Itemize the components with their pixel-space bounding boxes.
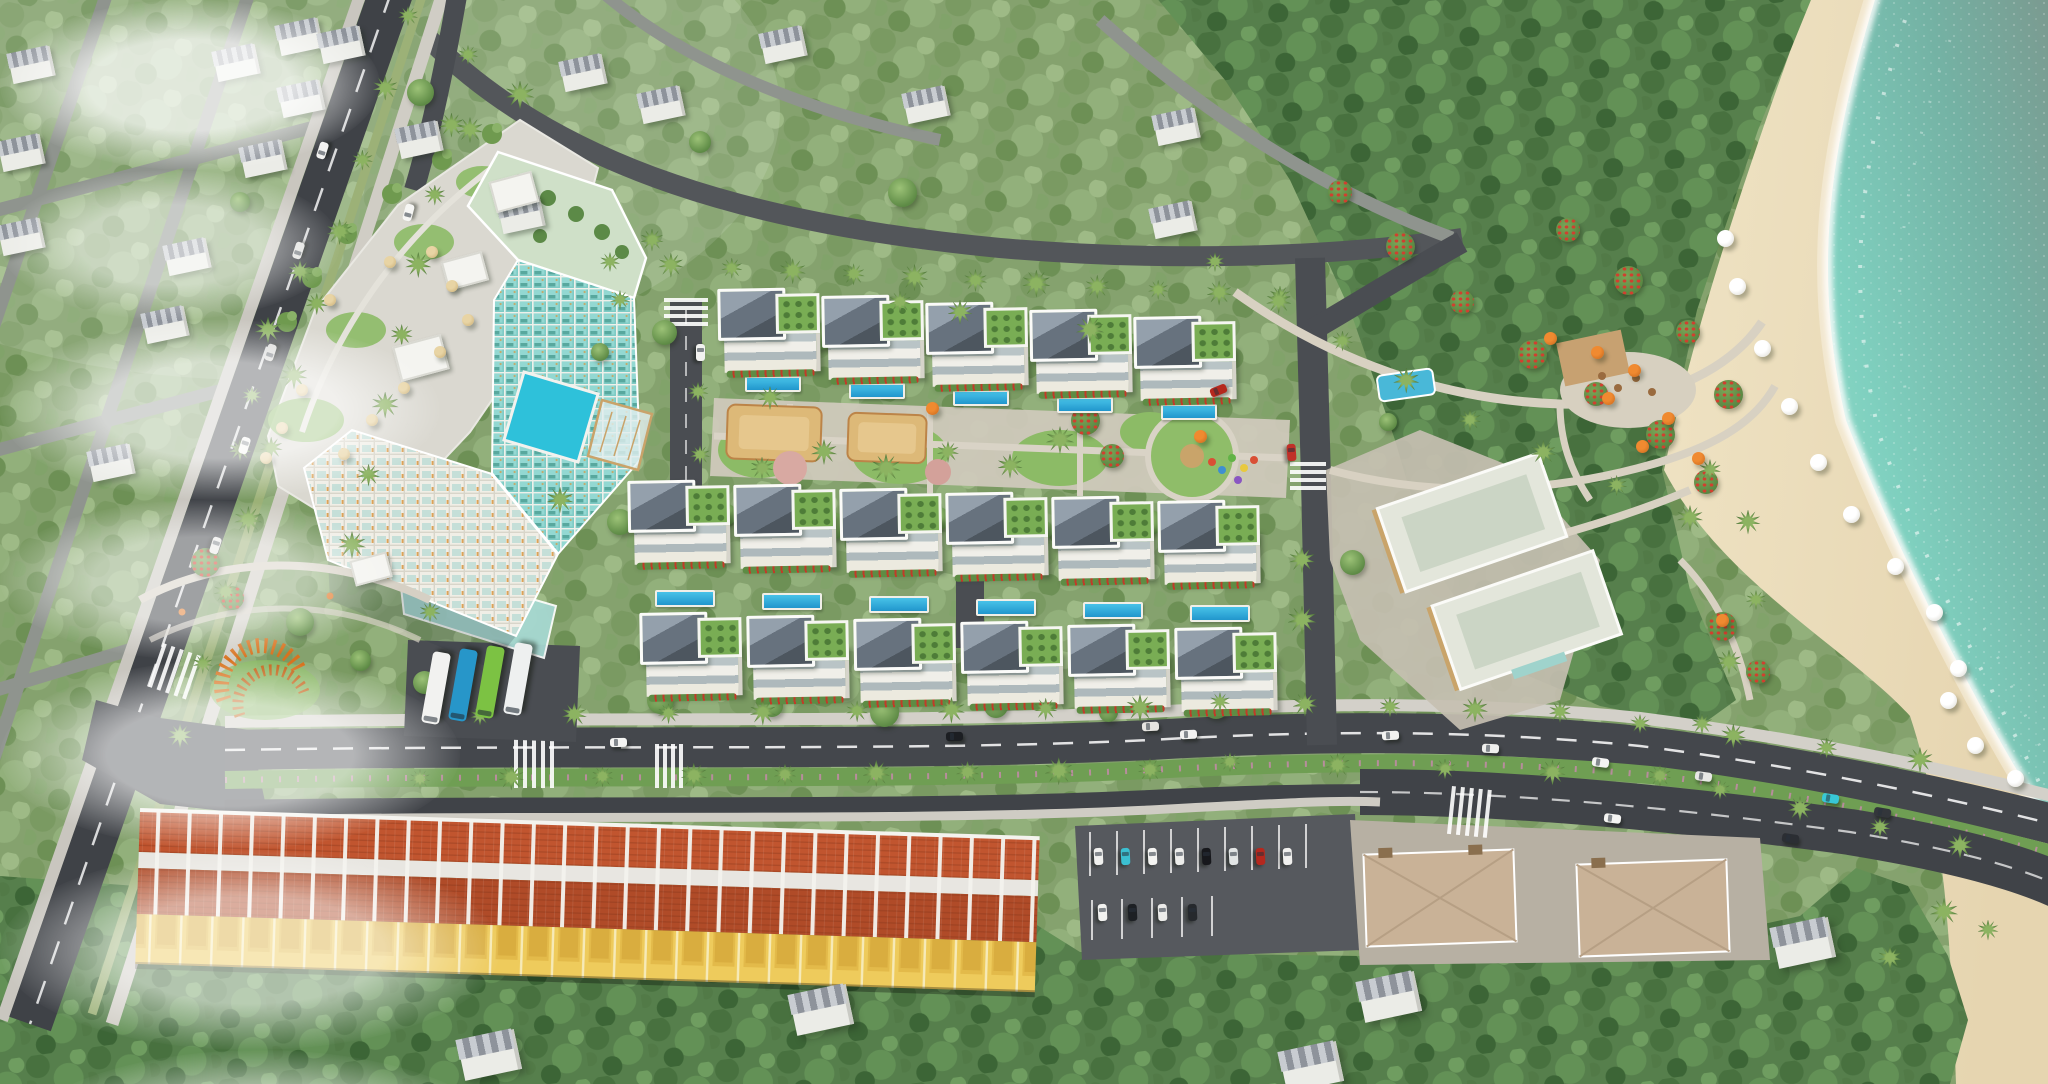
beach-umbrella [1940, 692, 1957, 709]
car-windshield [1877, 808, 1882, 816]
roof-terrace [1125, 629, 1170, 670]
villa-pool [655, 590, 715, 607]
car-windshield [212, 540, 220, 546]
flower-hedge [955, 573, 1043, 582]
house [0, 134, 46, 172]
car [292, 241, 306, 260]
villa-pool [1190, 605, 1250, 622]
cafe-umbrella [296, 384, 308, 396]
palm-tree [956, 761, 979, 784]
car-windshield [266, 352, 274, 358]
house [212, 44, 260, 82]
bus-windshield [423, 715, 438, 722]
flowering-tree [1746, 660, 1770, 684]
house [317, 26, 365, 64]
villa [639, 607, 745, 705]
palm-tree [1746, 590, 1766, 610]
palm-tree [255, 317, 282, 344]
villa [821, 290, 927, 388]
palm-tree [424, 185, 445, 206]
house [559, 54, 607, 92]
palm-tree [658, 253, 683, 278]
palm-tree [1870, 817, 1891, 838]
house [457, 1029, 522, 1081]
palm-tree [327, 219, 353, 245]
palm-tree [234, 506, 262, 534]
villa [1051, 491, 1157, 589]
palm-tree [998, 454, 1023, 479]
roof-terrace [1003, 497, 1048, 538]
villa-pool [1083, 602, 1143, 619]
house-roof [901, 85, 945, 108]
flowering-tree [1386, 232, 1415, 261]
car-windshield [241, 440, 249, 446]
flowering-tree [1100, 444, 1124, 468]
flowering-tree [1614, 266, 1643, 295]
house [1152, 108, 1200, 146]
house-roof [787, 983, 847, 1015]
car-windshield [1288, 448, 1295, 452]
car-windshield [1146, 723, 1150, 730]
palm-tree [1717, 650, 1742, 675]
flowering-tree [1556, 218, 1580, 242]
palm-tree [168, 724, 193, 749]
palm-tree [1710, 780, 1730, 800]
palm-tree [499, 765, 524, 790]
house [759, 26, 807, 64]
house-roof [274, 17, 318, 40]
car [1202, 848, 1212, 865]
villa-pool [976, 599, 1036, 616]
car-windshield [1159, 908, 1166, 912]
flower-hedge [743, 565, 831, 574]
car-windshield [1122, 852, 1129, 856]
palm-tree [1606, 475, 1627, 496]
tree [1379, 413, 1397, 431]
flower-hedge [935, 383, 1023, 392]
house [902, 86, 950, 124]
palm-tree [1289, 547, 1315, 573]
car-windshield [1257, 852, 1264, 856]
flowering-tree [1714, 380, 1743, 409]
roof-terrace [775, 293, 820, 334]
car-windshield [1230, 852, 1237, 856]
car [1591, 757, 1609, 768]
house [163, 238, 211, 276]
roof-terrace [1232, 632, 1277, 673]
roof-terrace [804, 620, 849, 661]
car [1873, 807, 1891, 819]
palm-tree [1930, 898, 1958, 926]
palm-tree [1022, 270, 1050, 298]
car-windshield [697, 348, 704, 352]
palm-tree [1878, 946, 1902, 970]
cafe-umbrella [434, 346, 446, 358]
car-windshield [318, 150, 326, 156]
beach-umbrella [1967, 737, 1984, 754]
car [1781, 833, 1799, 845]
palm-tree [751, 457, 774, 480]
car-windshield [1203, 852, 1210, 856]
villa [717, 283, 823, 381]
flower-hedge [1061, 577, 1149, 586]
car-windshield [1213, 387, 1219, 395]
car [1121, 848, 1131, 865]
car [1694, 771, 1712, 782]
palm-tree [288, 260, 312, 284]
palm-tree [843, 263, 865, 285]
beach-umbrella [1887, 558, 1904, 575]
bus [475, 645, 505, 719]
car [1158, 904, 1168, 921]
car [1821, 793, 1839, 805]
house-roof [211, 43, 255, 66]
rooftop-cabin [349, 552, 392, 587]
bus-windshield [477, 709, 492, 716]
palm-tree [1947, 833, 1973, 859]
orange-umbrella [1602, 392, 1615, 405]
flower-hedge [849, 569, 937, 578]
villa [1067, 619, 1173, 717]
palm-tree [1046, 426, 1074, 454]
car [1188, 904, 1198, 921]
beach-umbrella [1950, 660, 1967, 677]
flower-hedge [637, 561, 725, 570]
car [209, 536, 223, 555]
car [1094, 848, 1104, 865]
car-windshield [1486, 745, 1490, 752]
house-roof [455, 1028, 515, 1060]
car-windshield [1149, 852, 1156, 856]
orange-umbrella [1636, 440, 1649, 453]
house-roof [758, 25, 802, 48]
villa [925, 297, 1031, 395]
house-roof [1148, 200, 1192, 223]
palm-tree [1736, 510, 1761, 535]
villa [945, 487, 1051, 585]
cafe-umbrella [446, 280, 458, 292]
house [141, 306, 189, 344]
palm-tree [1148, 280, 1168, 300]
house-roof [6, 45, 50, 68]
palm-tree [964, 269, 987, 292]
villa [1174, 622, 1280, 720]
beach-umbrella [2007, 770, 2024, 787]
palm-tree [1788, 796, 1813, 821]
villa [960, 616, 1066, 714]
tree [652, 320, 677, 345]
house [239, 140, 287, 178]
car-windshield [1386, 732, 1390, 739]
villa [1029, 304, 1135, 402]
cafe-umbrella [426, 246, 438, 258]
house-roof [1151, 107, 1195, 130]
car-windshield [614, 739, 618, 746]
house [277, 80, 325, 118]
palm-tree [1540, 760, 1566, 786]
tree [591, 343, 609, 361]
villa [746, 610, 852, 708]
palm-tree [398, 6, 418, 26]
flower-hedge [1184, 708, 1272, 717]
flower-hedge [649, 693, 737, 702]
cafe-umbrella [398, 382, 410, 394]
roof-terrace [791, 489, 836, 530]
palm-tree [937, 441, 959, 463]
palm-tree [774, 764, 796, 786]
house-roof [1769, 916, 1829, 948]
car-windshield [950, 733, 954, 740]
palm-tree [1220, 752, 1240, 772]
cafe-umbrella [324, 294, 336, 306]
tree [689, 131, 711, 153]
palm-tree [1649, 765, 1671, 787]
palm-tree [688, 382, 709, 403]
orange-umbrella [1662, 412, 1675, 425]
car [264, 343, 278, 362]
house-roof [238, 139, 282, 162]
car [946, 732, 963, 741]
palm-tree [1907, 747, 1933, 773]
scene-objects [0, 0, 2048, 1084]
house [1771, 917, 1836, 969]
cafe-umbrella [366, 414, 378, 426]
car-windshield [1095, 852, 1102, 856]
tree [407, 79, 434, 106]
car-windshield [404, 212, 412, 218]
flowering-tree [1518, 340, 1547, 369]
villa-pool [869, 596, 929, 613]
car-windshield [1699, 772, 1704, 779]
palm-tree [600, 252, 620, 272]
villa [627, 475, 733, 573]
palm-tree [1138, 758, 1162, 782]
car-windshield [1184, 731, 1188, 738]
bus [448, 648, 478, 722]
car [1128, 904, 1138, 921]
orange-umbrella [1544, 332, 1557, 345]
flowering-tree [1450, 290, 1474, 314]
palm-tree [681, 763, 707, 789]
palm-tree [872, 454, 901, 483]
roof-terrace [911, 623, 956, 664]
house-roof [1277, 1040, 1337, 1072]
villa [853, 613, 959, 711]
house [637, 86, 685, 124]
palm-tree [592, 766, 613, 787]
bus [503, 642, 533, 716]
orange-umbrella [1194, 430, 1207, 443]
villa [733, 479, 839, 577]
tree [350, 650, 371, 671]
roof-terrace [1191, 321, 1236, 362]
house-roof [316, 25, 360, 48]
car [402, 203, 415, 222]
roof-terrace [1109, 501, 1154, 542]
beach-umbrella [1729, 278, 1746, 295]
cafe-umbrella [384, 256, 396, 268]
palm-tree [1393, 368, 1419, 394]
flower-hedge [727, 369, 815, 378]
beach-umbrella [1717, 230, 1734, 247]
car [1482, 744, 1499, 754]
flower-hedge [831, 376, 919, 385]
roof-terrace [1215, 505, 1260, 546]
cafe-umbrella [276, 422, 288, 434]
palm-tree [357, 464, 380, 487]
flower-hedge [863, 699, 951, 708]
palm-tree [1293, 692, 1318, 717]
cafe-umbrella [462, 314, 474, 326]
car-windshield [1826, 794, 1831, 802]
car-windshield [1786, 834, 1791, 842]
house [1279, 1041, 1344, 1084]
car [1256, 848, 1266, 865]
house [1149, 201, 1197, 239]
car-windshield [294, 250, 302, 256]
house [0, 218, 46, 256]
house [87, 444, 135, 482]
house-roof [636, 85, 680, 108]
flower-hedge [1143, 397, 1231, 406]
palm-tree [506, 81, 535, 110]
palm-tree [1460, 410, 1480, 430]
orange-umbrella [1591, 346, 1604, 359]
car [1283, 848, 1293, 865]
palm-tree [1207, 280, 1232, 305]
villa [1157, 495, 1263, 593]
palm-tree [1630, 714, 1650, 734]
palm-tree [410, 769, 430, 789]
palm-tree [1978, 920, 1999, 941]
beach-umbrella [1754, 340, 1771, 357]
house-roof [276, 79, 320, 102]
house-roof [0, 133, 40, 156]
palm-tree [547, 487, 574, 514]
car-windshield [1596, 758, 1601, 765]
car-windshield [1608, 814, 1613, 821]
beach-umbrella [1810, 454, 1827, 471]
palm-tree [721, 258, 742, 279]
palm-tree [1435, 759, 1456, 780]
palm-tree [1085, 275, 1109, 299]
orange-umbrella [1716, 614, 1729, 627]
palm-tree [901, 264, 928, 291]
villa [839, 483, 945, 581]
house-roof [140, 305, 184, 328]
car-windshield [1129, 908, 1136, 912]
house [395, 121, 443, 159]
roof-terrace [983, 307, 1028, 348]
palm-tree [193, 654, 213, 674]
car [696, 344, 705, 361]
tree [888, 178, 917, 207]
beach-umbrella [1926, 604, 1943, 621]
aerial-resort-render [0, 0, 2048, 1084]
car [610, 738, 627, 747]
car [1382, 731, 1399, 741]
palm-tree [863, 760, 890, 787]
villa [1133, 311, 1239, 409]
roof-terrace [697, 617, 742, 658]
roof-terrace [879, 300, 924, 341]
car-windshield [1284, 852, 1291, 856]
palm-tree [1325, 753, 1350, 778]
car [1175, 848, 1185, 865]
palm-tree [1462, 697, 1488, 723]
palm-tree [420, 602, 441, 623]
palm-tree [1045, 757, 1073, 785]
house-roof [1355, 970, 1415, 1002]
palm-tree [1721, 724, 1746, 749]
flowering-tree [1328, 180, 1352, 204]
cafe-umbrella [260, 452, 272, 464]
car [1604, 813, 1622, 824]
orange-umbrella [926, 402, 939, 415]
car [1286, 444, 1296, 462]
tree [1340, 550, 1365, 575]
roof-terrace [1018, 626, 1063, 667]
car-windshield [1176, 852, 1183, 856]
palm-tree [562, 702, 587, 727]
car [1148, 848, 1158, 865]
orange-umbrella [1628, 364, 1641, 377]
palm-tree [610, 290, 630, 310]
palm-tree [1692, 714, 1713, 735]
palm-tree [1816, 738, 1837, 759]
palm-tree [1205, 252, 1225, 272]
palm-tree [1380, 697, 1401, 718]
palm-tree [373, 76, 398, 101]
palm-tree [458, 45, 478, 65]
beach-umbrella [1781, 398, 1798, 415]
house-roof [394, 120, 438, 143]
palm-tree [690, 445, 710, 465]
car [1142, 722, 1159, 732]
palm-tree [1332, 331, 1353, 352]
house-roof [86, 443, 130, 466]
roof-terrace [897, 493, 942, 534]
car [1180, 730, 1197, 740]
palm-tree [338, 531, 366, 559]
house [789, 984, 854, 1036]
tree [286, 608, 314, 636]
bus-windshield [505, 706, 520, 713]
flowering-tree [1676, 320, 1700, 344]
house-roof [558, 53, 602, 76]
car [1229, 848, 1239, 865]
palm-tree [811, 439, 837, 465]
car-windshield [1189, 908, 1196, 912]
palm-tree [780, 258, 806, 284]
flower-hedge [1039, 390, 1127, 399]
palm-tree [1677, 505, 1703, 531]
palm-tree [1288, 606, 1317, 635]
orange-umbrella [1692, 452, 1705, 465]
beach-umbrella [1843, 506, 1860, 523]
tree [230, 192, 250, 212]
car [1098, 904, 1108, 921]
bus-windshield [450, 712, 465, 719]
house-roof [162, 237, 206, 260]
roof-terrace [685, 485, 730, 526]
cafe-umbrella [338, 448, 350, 460]
house-roof [0, 217, 40, 240]
palm-tree [242, 386, 262, 406]
flower-hedge [1167, 581, 1255, 590]
palm-tree [352, 150, 373, 171]
palm-tree [1549, 701, 1571, 723]
